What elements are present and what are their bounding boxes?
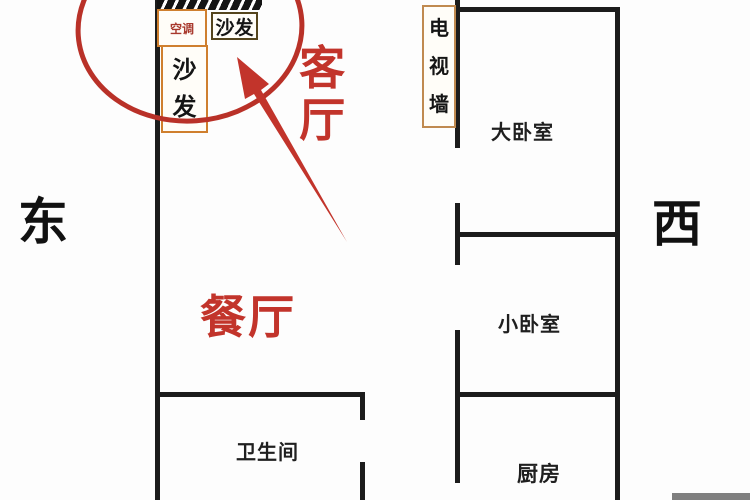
wall-bathroom-right-lower [360,462,365,500]
living-room-annotation: 客厅 [298,42,346,146]
floor-plan: 空调 沙发 沙发 电视墙 大卧室 小卧室 厨房 卫生间 东 西 客厅 餐厅 [0,0,750,500]
dining-room-annotation: 餐厅 [200,291,296,343]
sofa-side-label: 沙发 [172,52,197,126]
wall-bathroom-right-upper [360,392,365,420]
wall-outer-left [155,0,160,500]
annotation-overlay [0,0,750,500]
wall-outer-right [615,7,620,500]
compass-west: 西 [652,184,702,256]
small-bedroom-label: 小卧室 [498,308,561,337]
sofa-top-label: 沙发 [215,13,253,40]
tv-wall-label: 电视墙 [429,10,450,124]
sofa-side-box: 沙发 [161,45,208,133]
kitchen-label: 厨房 [517,458,561,488]
ac-box: 空调 [157,9,207,47]
compass-east: 东 [18,182,68,254]
tv-wall-box: 电视墙 [422,5,456,128]
bathroom-label: 卫生间 [236,436,299,465]
ac-label: 空调 [170,20,194,37]
wall-kitchen-top [455,392,620,397]
wall-bathroom-top [155,392,365,397]
sofa-top-box: 沙发 [211,12,258,40]
big-bedroom-label: 大卧室 [491,116,554,145]
wall-bedroom-top [455,7,620,12]
wall-bedroom-left-lower [455,330,460,483]
footer-gray-bar [672,493,750,500]
wall-divider-bedrooms [455,232,620,237]
